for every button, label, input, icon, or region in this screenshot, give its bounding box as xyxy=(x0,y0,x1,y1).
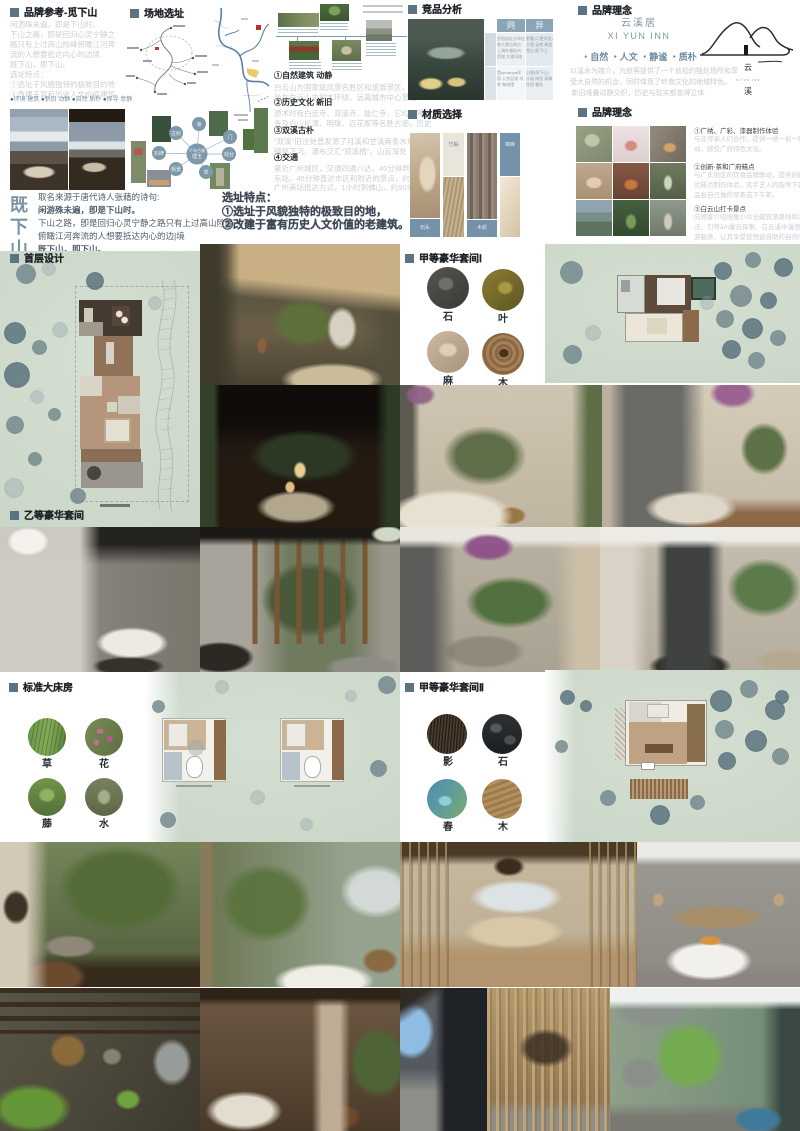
svg-text:戏台: 戏台 xyxy=(224,151,234,158)
svg-text:埠: 埠 xyxy=(203,169,208,176)
svg-text:门: 门 xyxy=(227,134,232,141)
svg-text:枫景: 枫景 xyxy=(171,166,181,173)
svg-text:古树: 古树 xyxy=(171,130,181,137)
svg-text:千年古镇: 千年古镇 xyxy=(189,147,205,153)
svg-text:海: 海 xyxy=(196,121,201,128)
svg-text:理玉: 理玉 xyxy=(192,154,202,160)
svg-text:石碑: 石碑 xyxy=(154,150,164,157)
